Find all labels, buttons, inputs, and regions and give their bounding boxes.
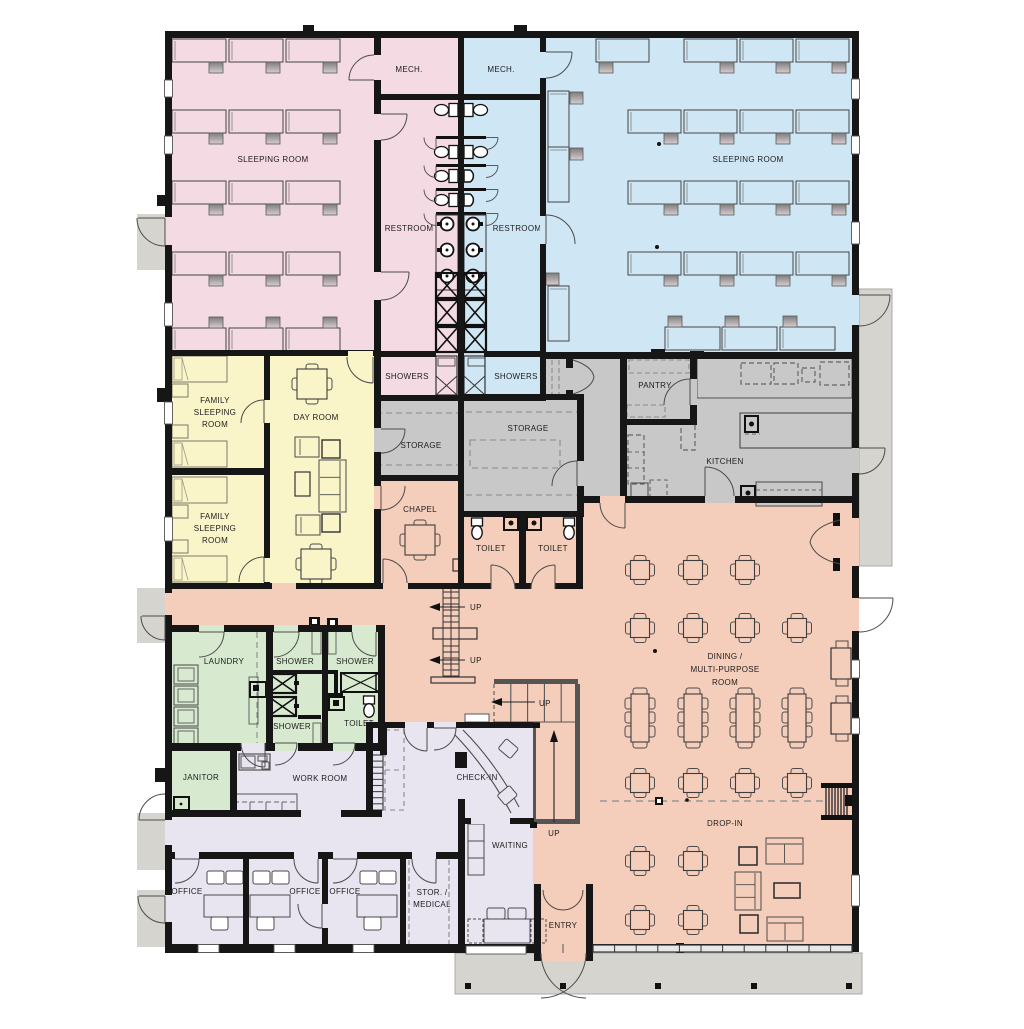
svg-text:SHOWER: SHOWER	[336, 657, 374, 666]
svg-text:ROOM: ROOM	[202, 420, 228, 429]
svg-text:SLEEPING ROOM: SLEEPING ROOM	[712, 155, 783, 164]
svg-text:ENTRY: ENTRY	[549, 921, 578, 930]
svg-text:SHOWER: SHOWER	[273, 722, 311, 731]
svg-text:CHECK-IN: CHECK-IN	[456, 773, 497, 782]
svg-text:SHOWERS: SHOWERS	[494, 372, 537, 381]
svg-text:SHOWER: SHOWER	[276, 657, 314, 666]
svg-text:FAMILY: FAMILY	[200, 512, 230, 521]
svg-text:SHOWERS: SHOWERS	[385, 372, 428, 381]
svg-text:RESTROOM: RESTROOM	[385, 224, 434, 233]
svg-text:ROOM: ROOM	[202, 536, 228, 545]
svg-text:PANTRY: PANTRY	[638, 381, 672, 390]
svg-text:FAMILY: FAMILY	[200, 396, 230, 405]
svg-text:STORAGE: STORAGE	[400, 441, 441, 450]
svg-text:CHAPEL: CHAPEL	[403, 505, 437, 514]
svg-text:SLEEPING: SLEEPING	[194, 408, 236, 417]
svg-text:ROOM: ROOM	[712, 678, 738, 687]
svg-text:DINING /: DINING /	[708, 652, 743, 661]
svg-text:SLEEPING: SLEEPING	[194, 524, 236, 533]
svg-text:TOILET: TOILET	[538, 544, 568, 553]
svg-text:RESTROOM: RESTROOM	[493, 224, 542, 233]
svg-text:MECH.: MECH.	[487, 65, 514, 74]
svg-text:TOILET: TOILET	[476, 544, 506, 553]
svg-text:UP: UP	[470, 656, 482, 665]
svg-text:JANITOR: JANITOR	[183, 773, 219, 782]
svg-text:SLEEPING ROOM: SLEEPING ROOM	[237, 155, 308, 164]
svg-text:WORK ROOM: WORK ROOM	[293, 774, 348, 783]
svg-text:UP: UP	[548, 829, 560, 838]
svg-text:DROP-IN: DROP-IN	[707, 819, 743, 828]
svg-text:STORAGE: STORAGE	[507, 424, 548, 433]
svg-text:KITCHEN: KITCHEN	[706, 457, 743, 466]
svg-text:UP: UP	[539, 699, 551, 708]
svg-text:MULTI-PURPOSE: MULTI-PURPOSE	[690, 665, 759, 674]
svg-text:UP: UP	[470, 603, 482, 612]
svg-text:OFFICE: OFFICE	[171, 887, 202, 896]
svg-text:OFFICE: OFFICE	[289, 887, 320, 896]
svg-text:OFFICE: OFFICE	[329, 887, 360, 896]
svg-text:MECH.: MECH.	[395, 65, 422, 74]
svg-text:DAY ROOM: DAY ROOM	[293, 413, 338, 422]
svg-text:MEDICAL: MEDICAL	[413, 900, 451, 909]
svg-text:STOR. /: STOR. /	[417, 888, 448, 897]
svg-text:LAUNDRY: LAUNDRY	[204, 657, 245, 666]
svg-text:WAITING: WAITING	[492, 841, 528, 850]
